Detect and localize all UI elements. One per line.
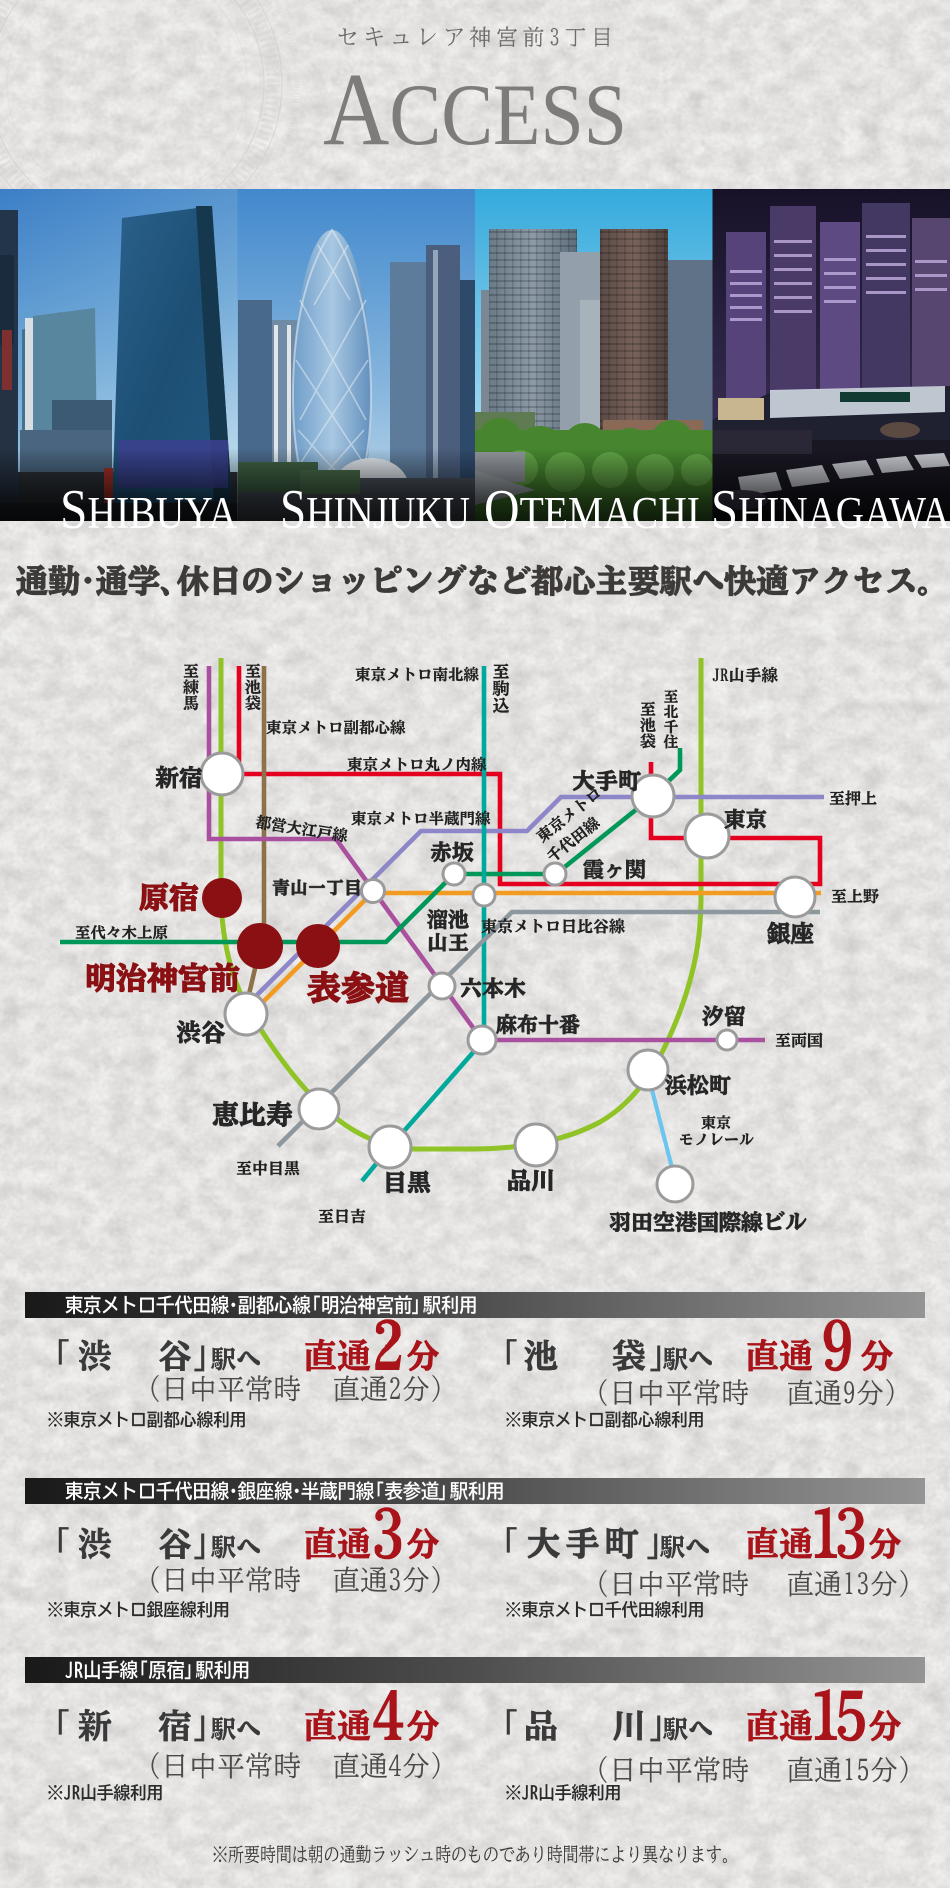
svg-text:SHINAGAWA: SHINAGAWA	[711, 479, 950, 541]
svg-text:SHINJUKU: SHINJUKU	[280, 479, 470, 541]
svg-text:OTEMACHI: OTEMACHI	[484, 479, 700, 541]
svg-text:SHIBUYA: SHIBUYA	[60, 479, 237, 541]
svg-text:ACCESS: ACCESS	[323, 52, 627, 167]
